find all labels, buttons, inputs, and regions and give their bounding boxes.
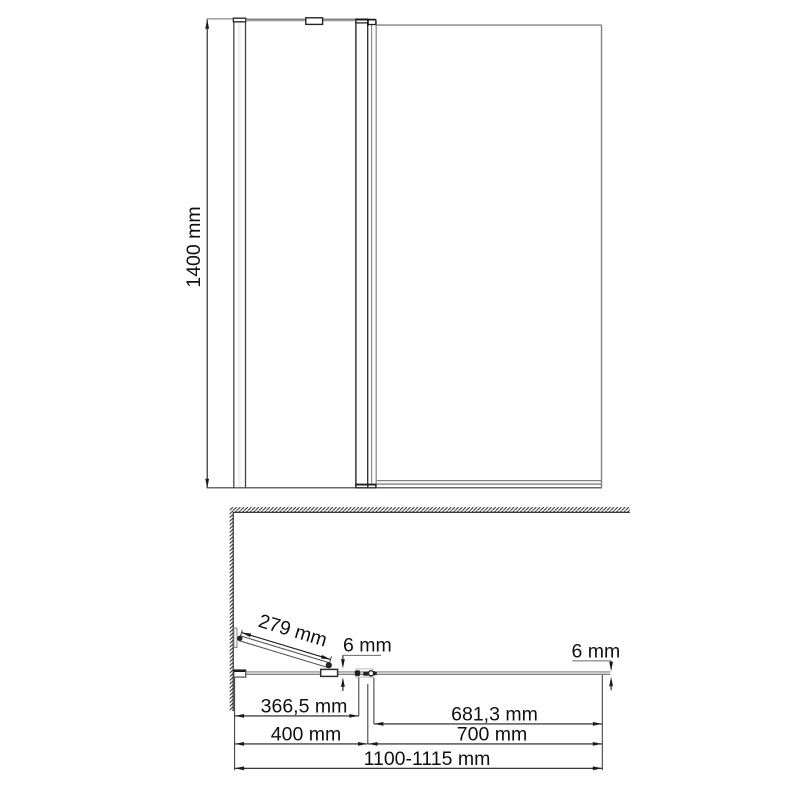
svg-text:700 mm: 700 mm — [457, 724, 527, 746]
svg-text:1400 mm: 1400 mm — [183, 206, 205, 287]
svg-text:6 mm: 6 mm — [572, 641, 621, 663]
svg-text:681,3 mm: 681,3 mm — [451, 704, 538, 726]
svg-text:366,5 mm: 366,5 mm — [261, 696, 348, 718]
svg-text:6 mm: 6 mm — [343, 635, 392, 657]
svg-text:1100-1115 mm: 1100-1115 mm — [364, 748, 491, 770]
svg-text:400 mm: 400 mm — [271, 724, 341, 746]
